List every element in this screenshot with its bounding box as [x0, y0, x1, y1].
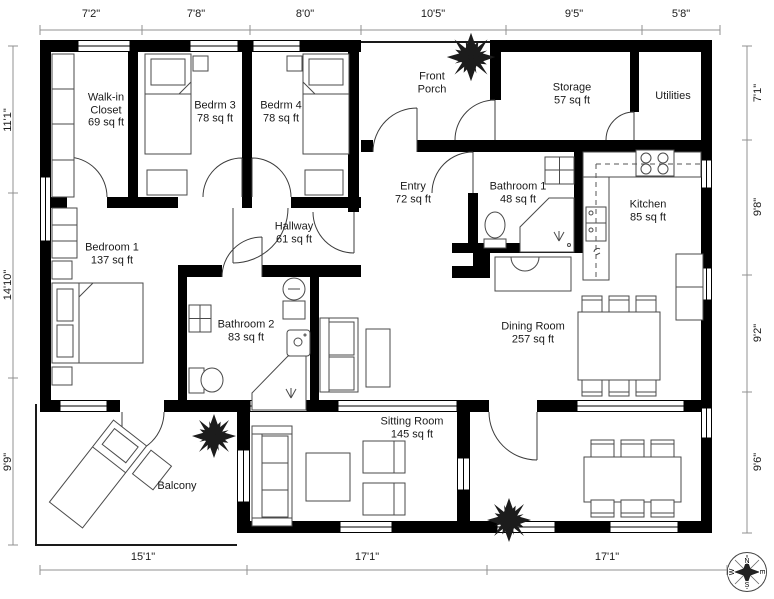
- kitchen-counters: [583, 150, 703, 320]
- bed-bedroom1: [52, 208, 143, 385]
- coffee-table: [306, 453, 350, 501]
- bed-bedrm4: [287, 54, 349, 195]
- compass-south-label: S: [745, 582, 750, 589]
- sofa-sitting-room: [252, 426, 292, 526]
- bathroom2-fixtures: [189, 278, 310, 410]
- dining-table: [578, 296, 660, 396]
- plant-icon: [447, 33, 495, 81]
- bathroom1-fixtures: [484, 157, 574, 252]
- plant-icon: [487, 498, 531, 542]
- compass-west-label: W: [729, 568, 736, 575]
- patio-table: [584, 440, 681, 517]
- armchairs: [363, 441, 405, 515]
- compass-east-label: E: [758, 570, 765, 575]
- compass-rose-icon: N S E W: [728, 553, 767, 592]
- balcony-lounger: [49, 420, 171, 528]
- plant-icon: [192, 414, 236, 458]
- floor-plan-drawing: N S E W: [0, 0, 774, 599]
- bed-bedrm3: [145, 54, 208, 195]
- loveseat-tv: [320, 318, 390, 392]
- floor-plan: N S E W Walk-in Closet 69 sq ft Bedrm 3 …: [0, 0, 774, 599]
- sideboard: [495, 257, 571, 291]
- compass-north-label: N: [744, 558, 749, 565]
- walk-in-closet-shelves: [52, 54, 74, 197]
